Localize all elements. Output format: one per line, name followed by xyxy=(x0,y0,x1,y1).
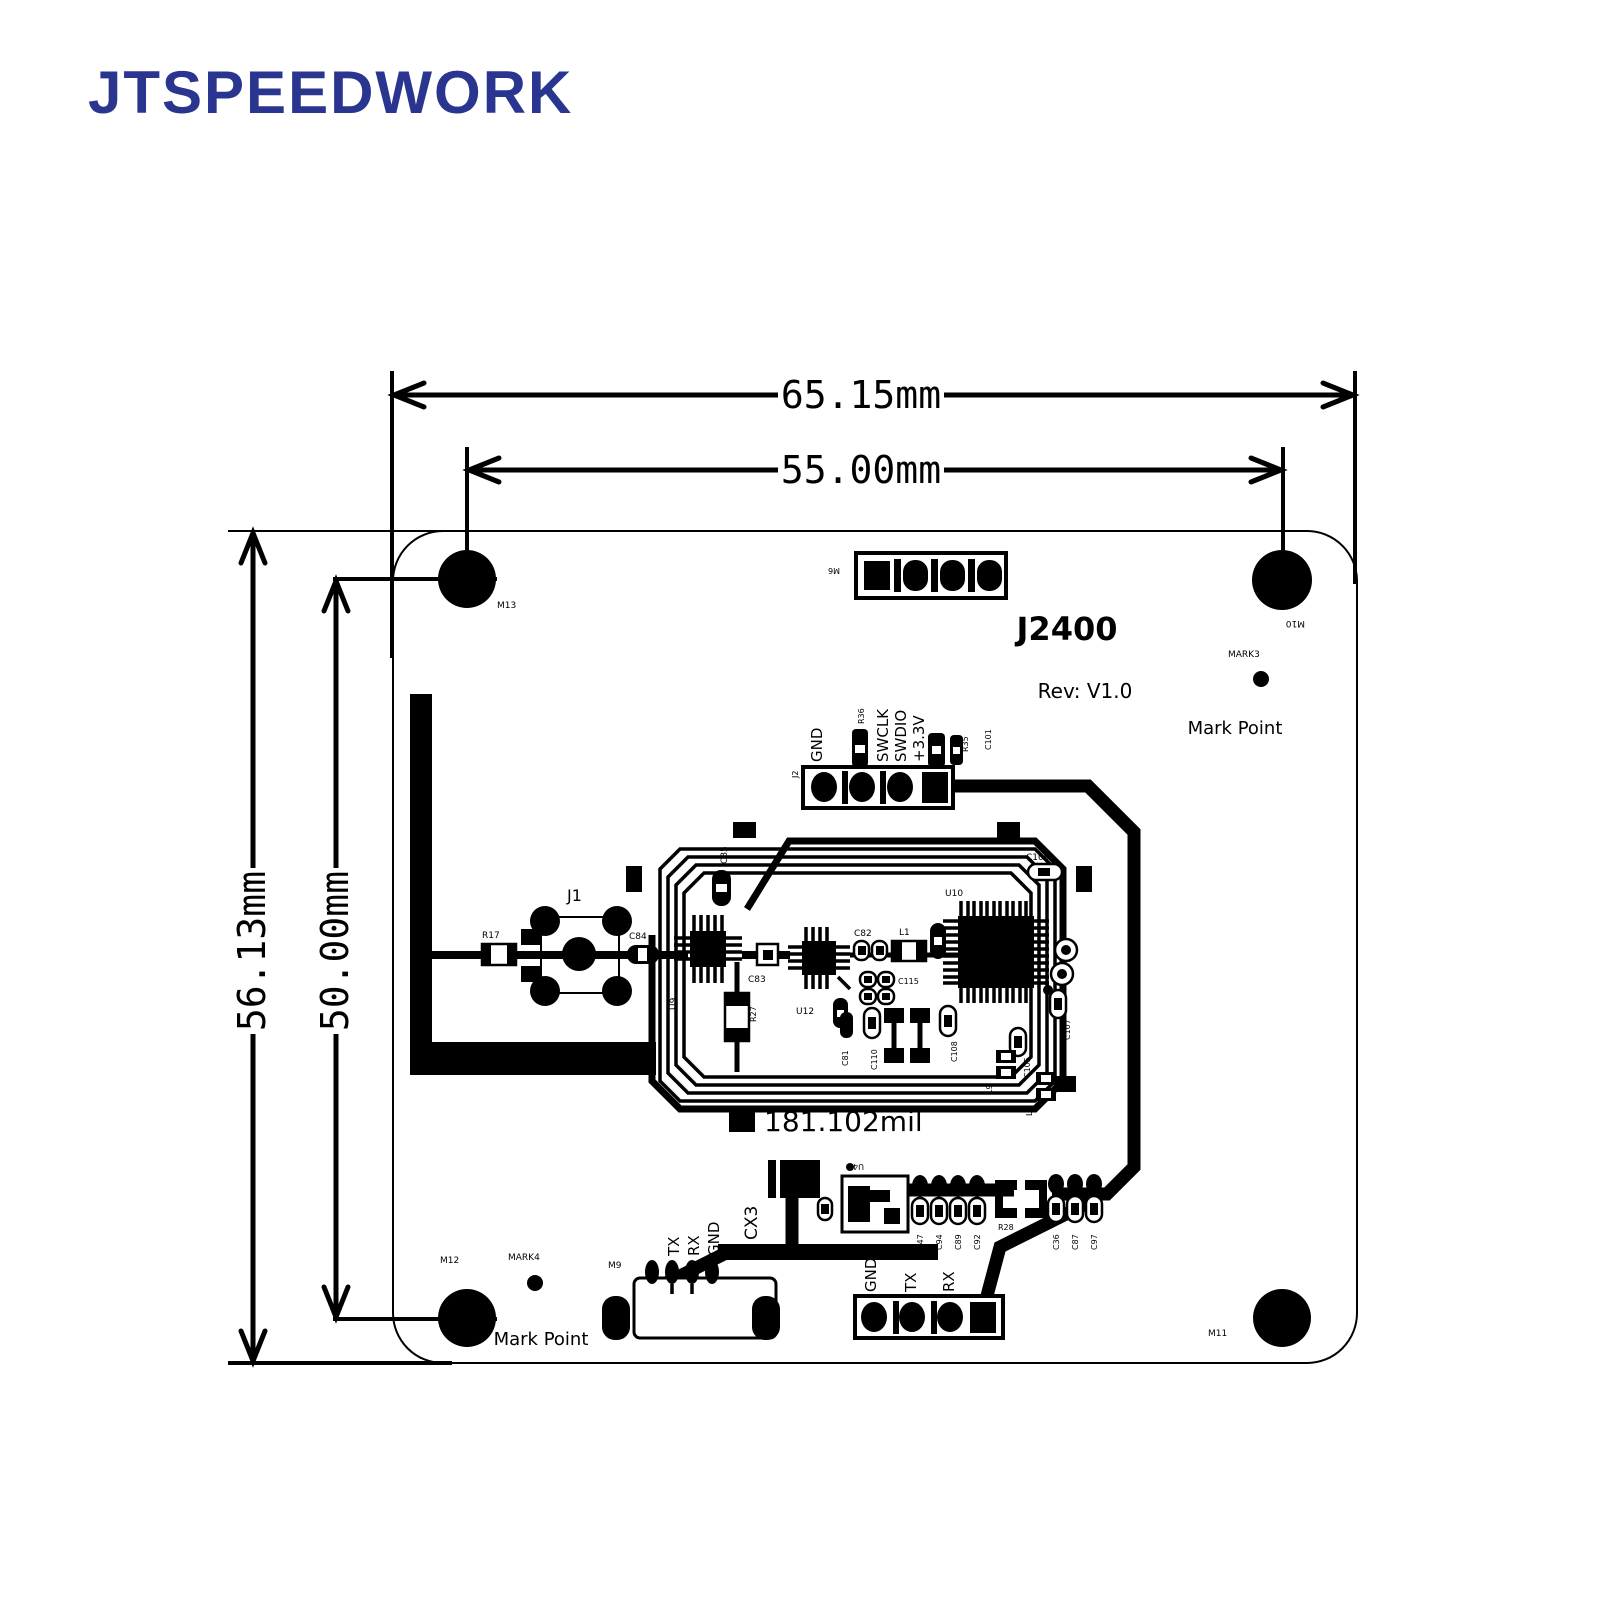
j2-pin-swclk: SWCLK xyxy=(874,708,892,762)
uart-pin-gnd: GND xyxy=(862,1258,880,1292)
component-l8-label: L8 xyxy=(1025,1106,1034,1116)
connector-j1-label: J1 xyxy=(566,886,582,905)
dim-inner-height-label: 50.00mm xyxy=(313,871,357,1031)
hole-m11-label: M11 xyxy=(1208,1329,1227,1339)
dim-outer-width-label: 65.15mm xyxy=(781,373,941,417)
ic-u12-label: U12 xyxy=(796,1007,814,1017)
component-r35-label: R35 xyxy=(961,736,970,752)
trace-note-text: 181.102mil xyxy=(764,1105,923,1138)
component-l9-label: L9 xyxy=(985,1084,994,1094)
hole-m13-label: M13 xyxy=(497,601,516,611)
hole-m12-label: M12 xyxy=(440,1256,459,1266)
mark4-dot xyxy=(527,1275,543,1291)
rf-chain-c82-l1: C82 L1 xyxy=(850,923,958,961)
component-c115-label: C115 xyxy=(898,977,919,986)
drawing-svg: 65.15mm 55.00mm 56.13mm xyxy=(0,0,1601,1601)
component-c108-label: C108 xyxy=(950,1041,959,1062)
m9-pin-tx: TX xyxy=(665,1237,683,1257)
component-c85-label: C85 xyxy=(720,846,730,864)
connector-j2-label: J2 xyxy=(791,771,800,779)
connector-m9-label: M9 xyxy=(608,1261,622,1271)
component-c109-label: C109 xyxy=(1026,853,1050,863)
j2-pin-3v3: +3.3V xyxy=(910,715,928,762)
j2-pin-gnd: GND xyxy=(808,728,826,762)
ic-u4-label: U4 xyxy=(853,1162,864,1171)
component-c110-label: C110 xyxy=(870,1049,879,1070)
component-c47-label: C47 xyxy=(916,1234,925,1250)
component-c97-label: C97 xyxy=(1090,1234,1099,1250)
mark3-dot xyxy=(1253,671,1269,687)
component-c105-label: C105 xyxy=(1023,1057,1032,1078)
cap-row-b: C36 C87 C97 xyxy=(1048,1174,1102,1250)
component-c83-label: C83 xyxy=(748,975,766,985)
component-c36-label: C36 xyxy=(1052,1234,1061,1250)
dim-outer-height-label: 56.13mm xyxy=(230,871,274,1031)
mark4-label: MARK4 xyxy=(508,1253,540,1263)
board-revision: Rev: V1.0 xyxy=(1038,679,1133,703)
component-c94-label: C94 xyxy=(935,1234,944,1250)
component-c89-label: C89 xyxy=(954,1234,963,1250)
component-c101-label: C101 xyxy=(984,729,993,750)
mark3-label: MARK3 xyxy=(1228,650,1260,660)
hole-m11 xyxy=(1253,1289,1311,1347)
component-c87-label: C87 xyxy=(1071,1234,1080,1250)
connector-cx3-body xyxy=(768,1160,820,1198)
component-c81 xyxy=(840,1012,853,1038)
hole-m12 xyxy=(438,1289,496,1347)
component-c107-label: C107 xyxy=(1063,1019,1072,1040)
uart-pin-rx: RX xyxy=(940,1271,958,1292)
mark3-caption: Mark Point xyxy=(1188,718,1283,739)
dim-inner-width-label: 55.00mm xyxy=(781,448,941,492)
pcb-dimension-drawing: JTSPEEDWORK 65.15mm 55.00mm xyxy=(0,0,1601,1601)
mark4-caption: Mark Point xyxy=(494,1329,589,1350)
component-r28-label: R28 xyxy=(998,1223,1014,1232)
ic-u9-label: U9 xyxy=(669,997,679,1010)
connector-m6-label: M6 xyxy=(828,566,840,575)
component-l1-label: L1 xyxy=(899,928,910,938)
component-r17-label: R17 xyxy=(482,931,500,941)
connector-m6: M6 xyxy=(828,553,1006,598)
hole-m10 xyxy=(1252,550,1312,610)
connector-cx3-label: CX3 xyxy=(742,1206,762,1240)
uart-pin-tx: TX xyxy=(902,1273,920,1293)
j2-pin-swdio: SWDIO xyxy=(892,710,910,762)
component-c81-label: C81 xyxy=(841,1050,850,1066)
component-c92-label: C92 xyxy=(973,1234,982,1250)
hole-m13 xyxy=(438,550,496,608)
m9-pin-gnd: GND xyxy=(705,1222,723,1256)
hole-m10-label: M10 xyxy=(1286,618,1305,628)
component-r36-label: R36 xyxy=(857,708,866,724)
component-c84-label: C84 xyxy=(629,932,647,942)
component-r27-label: R27 xyxy=(749,1006,758,1022)
board-model: J2400 xyxy=(1015,610,1118,648)
component-c82-label: C82 xyxy=(854,929,872,939)
ic-u10-label: U10 xyxy=(945,889,963,899)
m9-pin-rx: RX xyxy=(685,1235,703,1256)
